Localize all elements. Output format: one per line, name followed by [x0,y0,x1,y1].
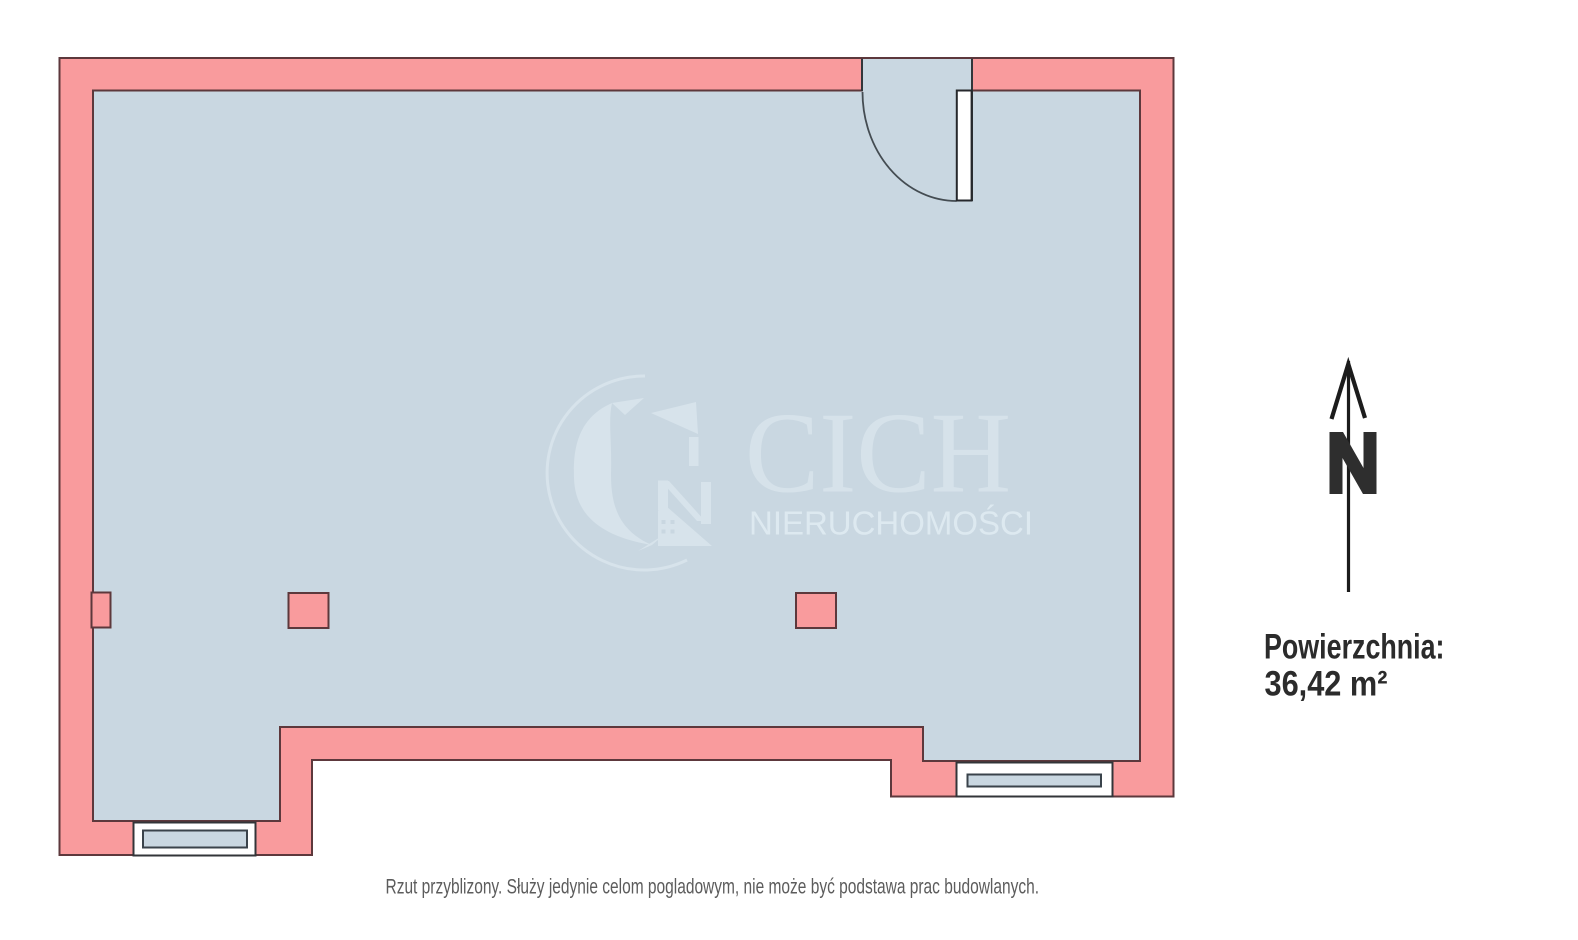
svg-text:Powierzchnia:: Powierzchnia: [1264,627,1445,667]
svg-text:36,42 m²: 36,42 m² [1265,664,1388,704]
svg-text:NIERUCHOMOŚCI: NIERUCHOMOŚCI [749,504,1033,542]
svg-text:CICH: CICH [745,390,1011,517]
svg-text:Rzut przyblizony. Służy jedyni: Rzut przyblizony. Służy jedynie celom po… [386,875,1040,899]
